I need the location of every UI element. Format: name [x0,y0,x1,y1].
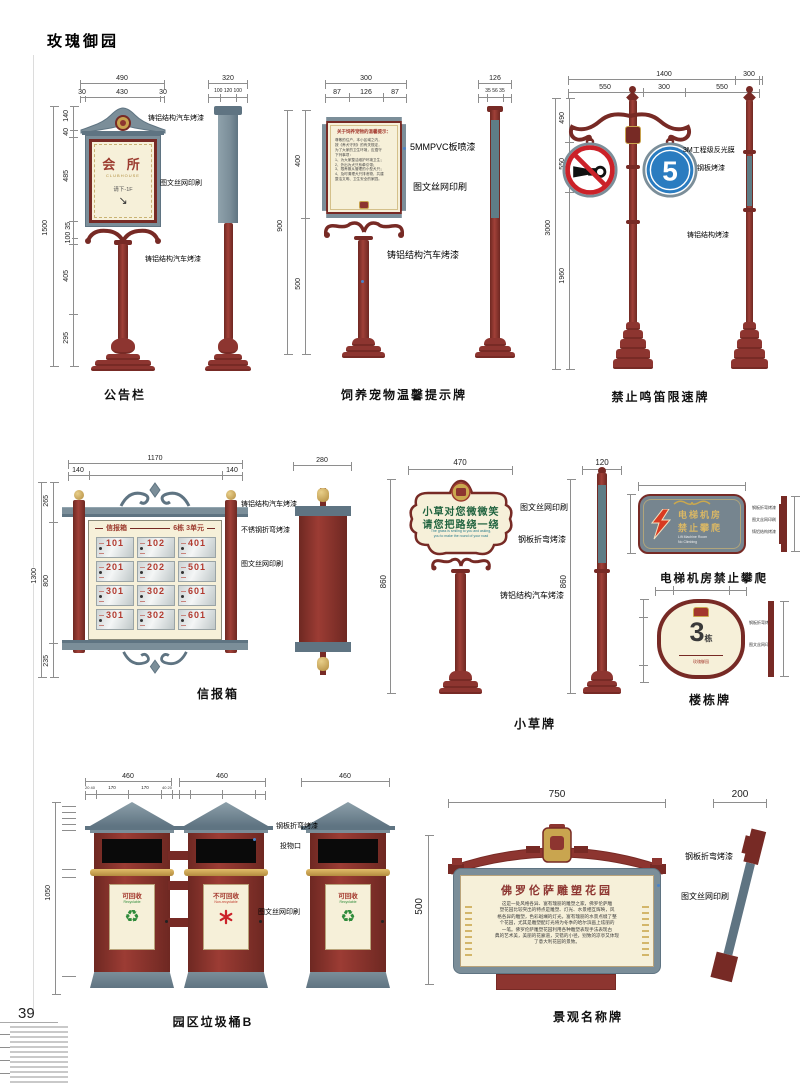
pet-plaque-face: 关于饲养宠物的温馨提示： 尊敬的住户，本小区域之内， 按《养犬守则》的有关规定，… [326,121,402,214]
material-annotation: 图文丝网印刷 [752,518,776,523]
scroll-bracket [556,110,704,146]
plate-number: 202 [138,562,174,582]
top-cornice [62,507,248,517]
dim-label: 1300 [31,568,38,584]
dim-label: 550 [598,84,612,91]
pole-collar [743,150,756,154]
dim-label: 100 120 100 [213,89,243,94]
bin-gold-band [184,869,268,876]
name-body: 这是一处风格各异、富有瑰丽的雕塑之家，佛罗伦萨雕 塑花园比较突出的特点是雕塑、灯… [478,901,636,946]
dim-tick [639,665,648,666]
base-ring [623,330,643,339]
dim-height-total [53,106,54,367]
elevator-sign-drawing: 电梯机房 禁止攀爬 Lift Machine Room No Climbing … [628,482,800,588]
crest-ornament [113,482,197,508]
side-panel-strip [491,120,499,218]
sign-caption: 景观名称牌 [458,1008,718,1025]
dim-label: 485 [63,170,70,182]
left-post [73,500,85,653]
dim-label: 320 [221,75,235,82]
dim-height [428,835,429,985]
bin-gold-band [306,869,390,876]
dim-side-width [713,802,767,803]
bin-panel: 不可回收 Non-recyclable [203,884,249,950]
gold-ornament-column [642,904,649,956]
plate-number: 301 [97,610,133,630]
mailbox-plate: 202 [137,561,175,582]
mailbox-plate: 101 [96,537,134,558]
dim-tick [62,812,76,813]
dim-label: 460 [338,773,352,780]
dim-label: 280 [315,457,329,464]
post [455,573,466,673]
side-column [218,115,238,223]
dim-tick [220,93,221,102]
plate-number: 102 [138,538,174,558]
material-annotation: 钢板烤漆 [697,165,725,173]
dim-height [643,599,644,683]
bin-panel: 可回收 Recyclable ♻ [325,884,371,950]
dim-tick [49,522,58,523]
material-annotation: 不锈钢折弯烤漆 [241,527,290,535]
bin-roof [306,802,390,826]
mailbox-grid: 101 102 401 201 202 501 301 302 601 301 … [96,537,216,630]
base-step [443,681,478,688]
mailbox-plate: 501 [178,561,216,582]
material-annotation: 图文丝网印刷 [160,180,202,188]
material-annotation: 铸铝结构烤漆 [687,232,729,240]
post-collar [594,569,610,573]
side-reflective-strip [747,156,752,206]
dim-label: 265 [43,495,50,507]
notice-board-drawing: 490 30 430 30 1500 140 40 485 100 35 405… [30,70,282,404]
dim-tick [62,818,76,819]
trash-bin-drawing: 460 460 460 20 40 170 170 40 20 1050 可回收… [28,773,413,1031]
mailbox-body: 信报箱 6栋 3单元 101 102 401 201 202 501 301 3… [88,520,222,640]
dim-tick [161,790,162,799]
footer-tick [0,1034,10,1035]
bin-roof [90,802,174,826]
name-line: 塑花园比较突出的特点是雕塑、灯光、水景相互辉映，风 [478,907,636,913]
dim-width [68,463,243,464]
building-unit: 栋 [705,634,713,643]
dim-label: 30 [158,89,168,96]
dim-width-bin1 [85,781,172,782]
dim-height-segments [53,482,54,678]
dim-side-height [794,496,795,552]
dim-height-segments [73,106,74,367]
sign-caption: 电梯机房禁止攀爬 [628,570,800,586]
base-step [475,352,515,358]
dim-label: 87 [332,89,342,96]
bin-gold-band [90,869,174,876]
bin-screw [381,920,384,923]
pet-plaque-inner-border [330,125,398,210]
base-ring [737,339,762,349]
dim-tick [89,471,90,480]
dim-height-total [55,802,56,995]
header-line [207,528,215,529]
dim-label: 140 [225,467,239,474]
grass-en2: you to make the round of your road [408,534,514,538]
side-body [299,516,347,642]
dim-label: 170 [107,786,117,791]
mailbox-plate: 201 [96,561,134,582]
dim-label: 40 [63,128,70,136]
dim-tick [301,218,310,219]
bottom-crest-ornament [113,650,197,674]
dim-width-bin2 [179,781,266,782]
mailbox-plate: 301 [96,609,134,630]
elevator-line1: 电梯机房 [678,508,722,521]
dim-label: 300 [657,84,671,91]
dim-width [80,83,165,84]
dim-label: 300 [742,71,756,78]
side-strip-tilted [699,825,780,991]
dim-label: 1500 [42,220,49,236]
mailbox-plate: 302 [137,585,175,606]
name-line: 了意大利花园的景致。 [478,939,636,945]
non-recyclable-icon [218,909,234,925]
dim-label: 430 [115,89,129,96]
page-number: 39 [18,1005,35,1022]
trash-bin-unit: 可回收 Recyclable ♻ [85,802,179,988]
material-annotation: 铸铝结构汽车烤漆 [145,256,201,264]
dim-label: 860 [560,575,568,588]
logo-emblem [359,201,369,209]
dim-label: 30 [77,89,87,96]
footer-tick [0,1060,10,1061]
header-line [130,528,170,529]
material-annotation: 投物口 [280,843,301,851]
dim-tick [503,93,504,102]
dim-tick [673,586,674,595]
building-footer: 玫瑰御园 [661,659,741,665]
dim-label: 1050 [45,885,52,901]
sign-caption: 楼栋牌 [635,691,785,708]
base-step [449,671,472,681]
grass-en1: The grass is smiling to you and asking, [408,529,514,533]
no-horn-icon [562,142,618,198]
bin-opening [196,839,256,863]
side-gold-knob [317,488,329,502]
pole-collar [626,165,640,169]
name-title: 佛罗伦萨雕塑花园 [460,882,654,898]
dim-side-parts [478,97,512,98]
dim-label: 170 [140,786,150,791]
design-manual-page: { "page": {"title": "玫瑰御园", "page_number… [0,0,800,1086]
building-number: 3 [689,617,704,647]
bin-panel: 可回收 Recyclable ♻ [109,884,155,950]
header-left-text: 信报箱 [106,523,127,533]
pet-sign-drawing: 300 87 126 87 900 400 500 关于饲养宠物的温馨提示： 尊… [275,70,533,404]
header-line [95,528,103,529]
base-ring [626,322,640,330]
plate-number: 101 [97,538,133,558]
bin-panel-title: 不可回收 [204,890,248,900]
dim-tick [62,806,76,807]
dim-label: 126 [359,89,373,96]
sign-caption: 饲养宠物温馨提示牌 [275,386,533,403]
dim-label: 460 [215,773,229,780]
name-line: 个花园，尤其是雕塑配灯光将为冬季的哈尔滨画上炫丽的 [478,920,636,926]
bin-panel-sub: Non-recyclable [204,900,248,904]
dim-width [655,590,747,591]
screw-dot [253,838,256,841]
dim-tick [172,790,173,799]
bin-opening [102,839,162,863]
building-sign-drawing: 3栋 玫瑰御园 钢板折弯烤漆 图文丝网印刷 楼栋牌 [635,585,800,705]
notice-panel-frame: 会 所 CLUBHOUSE 请下-1F ↘ [85,135,161,227]
dim-height-total [41,482,42,678]
bottom-cornice [62,640,248,650]
dim-label: 500 [295,278,302,290]
dim-width [448,802,666,803]
bin-base [306,972,390,988]
dim-height-total [287,110,288,355]
side-post [224,223,233,340]
material-annotation: 图文丝网印刷 [258,909,300,917]
dim-tick [487,93,488,102]
material-annotation: 钢板折弯烤漆 [276,823,318,831]
dim-side-parts [208,97,248,98]
dim-label: 550 [715,84,729,91]
mailbox-plate: 601 [178,585,216,606]
sign-caption: 信报箱 [93,685,343,702]
dim-label: 460 [121,773,135,780]
base-step [484,338,506,346]
elevator-plaque: 电梯机房 禁止攀爬 Lift Machine Room No Climbing [638,494,746,554]
dim-tick [128,790,129,799]
recycle-icon: ♻ [326,908,370,925]
dim-tick [49,643,58,644]
name-base-bar [496,974,616,990]
bin-panel-title: 可回收 [110,890,154,900]
side-bottom-cap [295,642,351,652]
bin-panel-sub: Recyclable [110,900,154,904]
header-right-text: 6栋 3单元 [173,523,204,533]
mailbox-plate: 401 [178,537,216,558]
name-plaque: 佛罗伦萨雕塑花园 这是一处风格各异、富有瑰丽的雕塑之家，佛罗伦萨雕 塑花园比较突… [448,824,666,992]
dim-width-bin3 [301,781,390,782]
material-annotation: 钢板折弯烤漆 [752,506,776,511]
material-annotation: 铸铝结构汽车烤漆 [387,250,459,260]
post-finial [74,490,84,500]
dim-label: 120 [594,459,609,467]
dim-tick [62,830,76,831]
material-annotation: 钢板折弯烤漆 [518,535,566,544]
bin-base [184,972,268,988]
base-step [205,366,251,371]
plate-number: 401 [179,538,215,558]
base-ring [620,339,646,349]
plate-number: 601 [179,586,215,606]
dim-tick [62,877,76,878]
dim-width-parts [325,97,407,98]
dim-label: 3000 [545,220,552,236]
mailbox-plate: 302 [137,609,175,630]
dim-side-width [293,465,352,466]
dim-label: 140 [71,467,85,474]
footer-stripe-block [10,1026,68,1086]
dim-label: 87 [390,89,400,96]
dim-height-right [570,479,571,694]
plate-number: 201 [97,562,133,582]
bin-screw [259,920,262,923]
dim-tick [69,137,78,138]
base-ring [734,349,765,359]
bin-base [90,972,174,988]
material-annotation: 图文丝网印刷 [520,503,568,512]
sign-caption: 禁止鸣笛限速牌 [533,388,788,405]
dim-label: 140 [63,110,70,122]
plate-number: 601 [179,610,215,630]
screw-dot [657,884,660,887]
dim-width-parts [68,475,243,476]
base-ring [731,359,768,369]
dim-label: 500 [415,898,425,915]
pole-collar [743,208,756,212]
post [118,244,128,340]
dim-label: 295 [63,332,70,344]
dim-side-height [783,601,784,677]
sign-caption: 公告栏 [30,386,220,403]
elevator-en1: Lift Machine Room [678,535,707,539]
mailbox-plate: 601 [178,609,216,630]
dim-width [325,83,407,84]
building-plaque: 3栋 玫瑰御园 [657,599,745,679]
bin-panel-sub: Recyclable [326,900,370,904]
material-annotation: 3M工程级反光膜 [683,147,735,155]
dim-tick [179,790,180,799]
base-step [342,352,385,358]
bin-panel-title: 可回收 [326,890,370,900]
side-panel-strip [598,485,606,563]
dim-tick [96,790,97,799]
dim-tick [639,617,648,618]
dim-sub-parts [85,794,266,795]
mailbox-drawing: 1170 140 140 1300 265 800 235 信报箱 6栋 3单元… [33,443,368,707]
plate-number: 302 [138,586,174,606]
dim-tick [349,93,350,102]
dim-label: 1400 [655,71,673,78]
dim-width-parts [568,92,760,93]
crown-emblem [693,607,709,617]
speed-value: 5 [662,155,678,186]
notice-panel-face: 会 所 CLUBHOUSE 请下-1F ↘ [89,139,157,223]
base-ring [613,359,653,369]
base-step [91,366,155,371]
dim-width [408,469,513,470]
side-shaft [724,862,755,955]
dim-height-left [390,479,391,694]
post-bulb [111,338,135,354]
page-title: 玫瑰御园 [47,30,119,51]
dim-label: 1960 [559,268,566,284]
material-annotation: 5MMPVC板喷漆 [410,142,476,152]
mailbox-header: 信报箱 6栋 3单元 [89,521,221,535]
base-step [583,687,621,694]
dim-tick [222,471,223,480]
dim-tick [643,88,644,97]
dim-label: 405 [63,270,70,282]
side-gold-knob [317,657,329,671]
dim-tick [190,790,191,799]
mailbox-plate: 301 [96,585,134,606]
side-cap [214,106,242,115]
dim-tick [255,790,256,799]
base-step [591,671,613,681]
plate-number: 501 [179,562,215,582]
footer-tick [0,1047,10,1048]
dim-label: 126 [488,75,502,82]
post [358,240,369,340]
dim-height-segments [305,110,306,355]
dim-tick [62,976,76,977]
bin-opening [318,839,378,863]
dim-label: 860 [380,575,388,588]
dim-tick [62,824,76,825]
building-number-row: 3栋 [661,617,741,654]
screw-dot [361,280,364,283]
dim-label: 900 [277,220,284,232]
bin-roof [184,802,268,826]
right-post [225,500,237,653]
plate-number: 301 [97,586,133,606]
gold-scroll-ornament [672,498,712,507]
dim-label: 800 [43,575,50,587]
material-annotation: 铸铝结构汽车烤漆 [241,501,297,509]
dim-label: 100 35 [65,222,72,243]
side-strip [781,496,787,552]
recycle-icon: ♻ [110,908,154,925]
dim-tick [69,244,78,245]
dim-tick [69,130,78,131]
elevator-en2: No Climbing [678,540,697,544]
material-annotation: 铸铝结构烤漆 [752,530,776,535]
dim-tick [685,88,686,97]
dim-width-parts [80,97,165,98]
footer-rule [0,1022,58,1023]
sign-caption: 园区垃圾桶B [88,1013,338,1030]
plate-number: 302 [138,610,174,630]
post-finial [226,490,236,500]
lightning-icon [650,509,672,541]
side-strip-step [779,504,781,544]
base-ring [743,322,756,330]
screw-dot [403,147,406,150]
material-annotation: 图文丝网印刷 [413,182,467,192]
mailbox-plate: 102 [137,537,175,558]
side-bulb [218,338,238,354]
dim-label: 400 [295,155,302,167]
dim-tick [222,790,223,799]
side-strip [768,601,774,677]
dim-tick [69,314,78,315]
dim-label: 490 [115,75,129,82]
dim-label: 1170 [146,455,163,462]
dim-label: 750 [548,790,567,800]
dim-side-width [478,83,512,84]
no-horn-sign-drawing: 1400 550 300 550 3000 490 550 1960 5 3M工… [545,70,800,408]
dim-tick [62,869,76,870]
dim-label: 35 56 35 [484,89,505,94]
material-annotation: 图文丝网印刷 [241,561,283,569]
dim-tick [729,586,730,595]
dim-side-width [208,83,248,84]
base-step [352,338,375,346]
gold-ornament-column [465,904,472,956]
